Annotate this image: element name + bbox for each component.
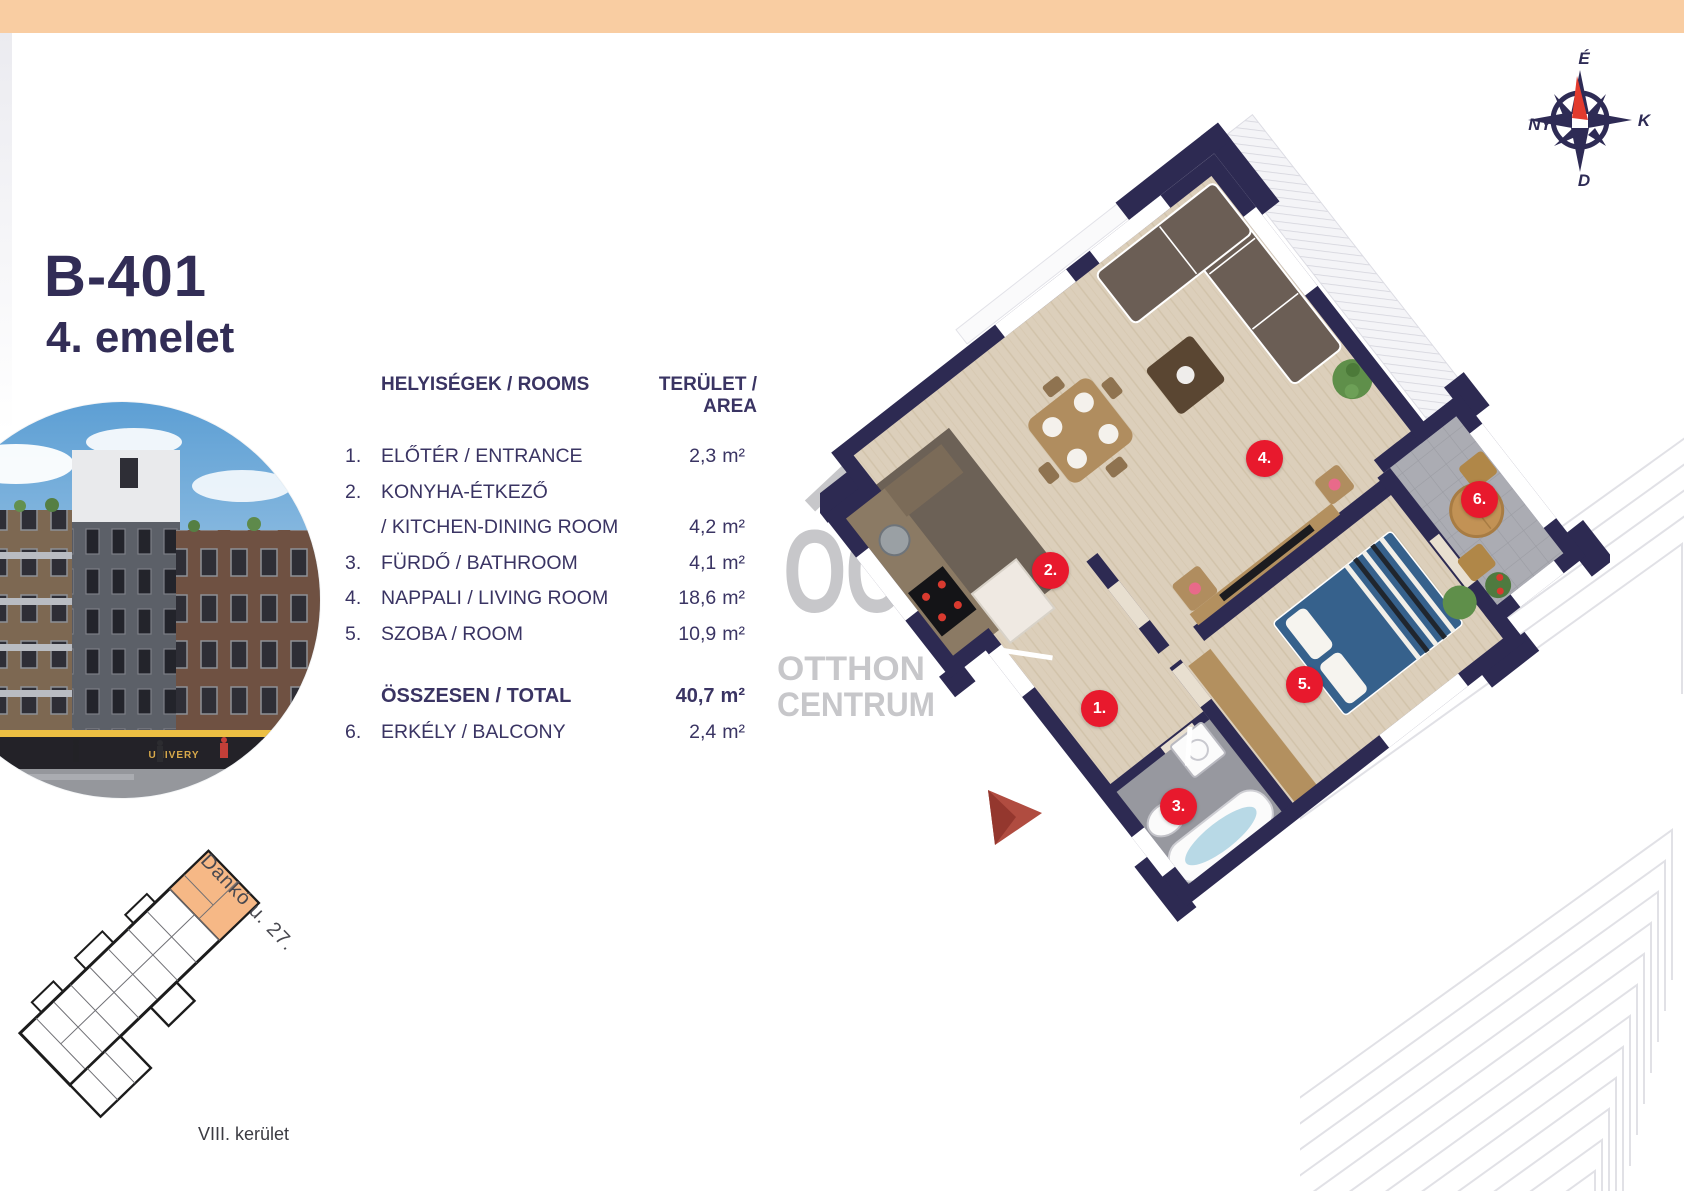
row-area: 18,6 [678,587,716,609]
site-plan-mini-map [0,800,340,1120]
total-unit: m² [721,685,745,707]
row-number: 6. [345,721,381,744]
storefront-sign: UNIVERY [148,750,199,761]
row-unit: m² [722,552,745,574]
row-unit: m² [722,721,745,743]
room-marker-room: 5. [1286,666,1323,703]
row-name: KONYHA-ÉTKEZŐ [381,481,647,504]
compass-label-west: NY [1528,115,1553,134]
room-marker-living: 4. [1246,440,1283,477]
row-area: 2,3 [689,445,716,467]
room-marker-entrance: 1. [1081,690,1118,727]
row-name: ERKÉLY / BALCONY [381,721,647,744]
table-header: HELYISÉGEK / ROOMS TERÜLET / AREA [345,374,757,418]
building-photo: UNIVERY [0,402,320,798]
row-number: 2. [345,481,381,504]
row-number: 4. [345,587,381,610]
table-row: 5. SZOBA / ROOM 10,9m² [345,623,757,659]
row-area: 10,9 [678,623,716,645]
table-row-balcony: 6. ERKÉLY / BALCONY 2,4m² [345,721,757,757]
entrance-arrow-icon [988,790,1042,845]
table-row: / KITCHEN-DINING ROOM 4,2m² [345,516,757,552]
table-row: 2. KONYHA-ÉTKEZŐ [345,481,757,517]
compass-label-east: K [1638,111,1652,130]
row-name: / KITCHEN-DINING ROOM [381,516,647,539]
table-total-row: ÖSSZESEN / TOTAL 40,7m² [345,685,757,721]
left-edge-shading [0,33,12,433]
row-number: 5. [345,623,381,646]
row-number: 1. [345,445,381,468]
total-area: 40,7 [676,685,715,707]
unit-floor-subtitle: 4. emelet [46,316,234,360]
table-rows: 1. ELŐTÉR / ENTRANCE 2,3m² 2. KONYHA-ÉTK… [345,445,757,756]
row-name: ELŐTÉR / ENTRANCE [381,445,647,468]
row-name: NAPPALI / LIVING ROOM [381,587,647,610]
compass-label-south: D [1578,171,1590,190]
room-marker-kitchen: 2. [1032,552,1069,589]
row-unit: m² [722,623,745,645]
compass-rose-icon: É K D NY [1500,40,1670,210]
total-label: ÖSSZESEN / TOTAL [381,685,647,708]
room-marker-balcony: 6. [1461,481,1498,518]
row-unit: m² [722,445,745,467]
table-row: 3. FÜRDŐ / BATHROOM 4,1m² [345,552,757,588]
top-banner [0,0,1684,33]
table-row: 1. ELŐTÉR / ENTRANCE 2,3m² [345,445,757,481]
table-row: 4. NAPPALI / LIVING ROOM 18,6m² [345,587,757,623]
row-area: 4,1 [689,552,716,574]
row-unit: m² [722,587,745,609]
row-area: 4,2 [689,516,716,538]
unit-id-title: B-401 [44,248,207,306]
header-rooms: HELYISÉGEK / ROOMS [381,374,647,418]
floor-plan-3d [820,110,1610,940]
row-name: SZOBA / ROOM [381,623,647,646]
compass-label-north: É [1578,49,1590,68]
brochure-page: { "unit": { "id": "B-401", "floor_label"… [0,0,1684,1191]
row-unit: m² [722,516,745,538]
row-number: 3. [345,552,381,575]
row-name: FÜRDŐ / BATHROOM [381,552,647,575]
row-area: 2,4 [689,721,716,743]
building-photo-art: UNIVERY [0,402,320,798]
district-label: VIII. kerület [198,1124,289,1145]
rooms-area-table: HELYISÉGEK / ROOMS TERÜLET / AREA 1. ELŐ… [345,374,757,756]
header-area: TERÜLET / AREA [647,374,757,418]
room-marker-bathroom: 3. [1160,788,1197,825]
